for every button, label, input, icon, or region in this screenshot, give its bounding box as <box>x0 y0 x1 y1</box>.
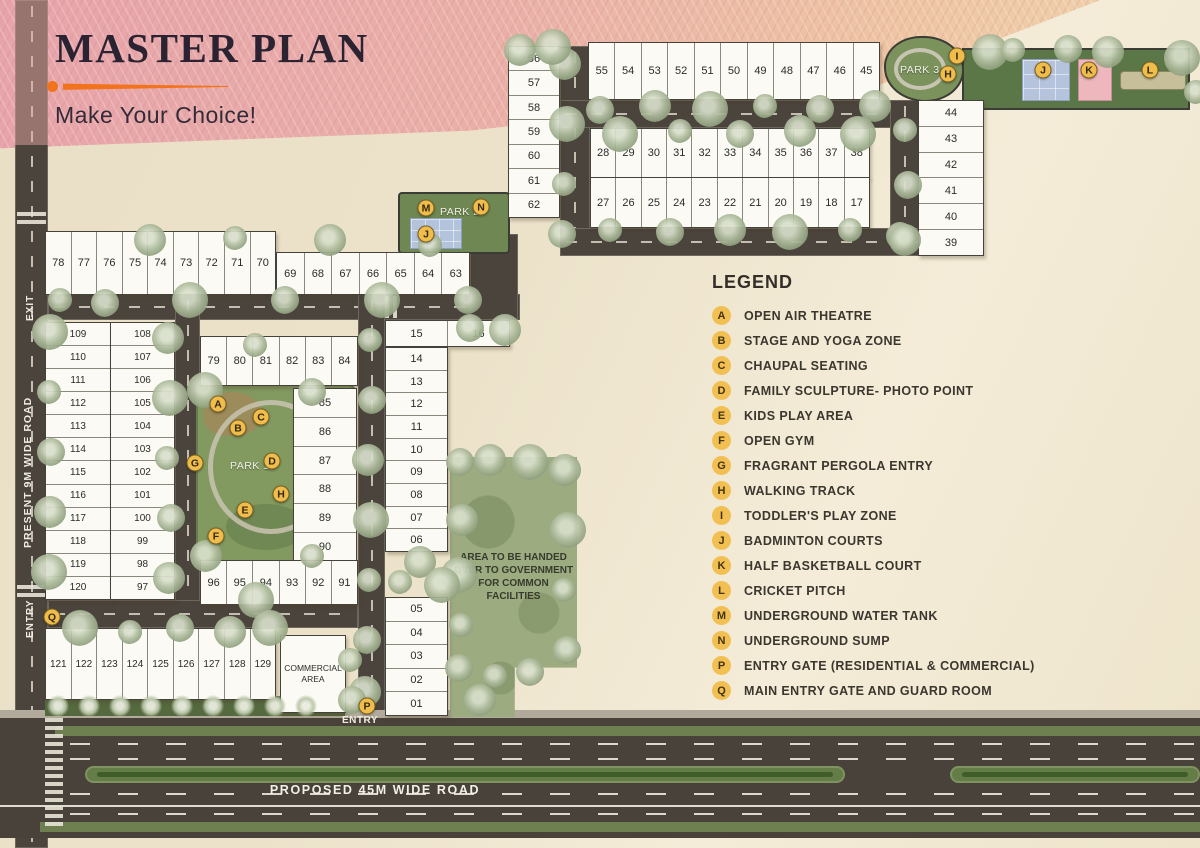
plot-group-96-91: 969594939291 <box>200 560 358 605</box>
map-marker-p-icon: P <box>359 698 376 715</box>
map-marker-i-icon: I <box>949 48 966 65</box>
plot-22[interactable]: 22 <box>718 178 743 227</box>
park3-label: PARK 3 <box>900 64 940 76</box>
legend-label: FRAGRANT PERGOLA ENTRY <box>744 459 933 473</box>
plot-104[interactable]: 104 <box>111 415 174 438</box>
plot-100[interactable]: 100 <box>111 508 174 531</box>
legend-item-a: AOPEN AIR THEATRE <box>712 306 1182 325</box>
commercial-area: COMMERCIAL AREA <box>280 635 346 713</box>
plot-23[interactable]: 23 <box>692 178 717 227</box>
plot-57[interactable]: 57 <box>509 71 559 95</box>
master-plan-map: PROPOSED 45M WIDE ROAD PARK 1 PARK 2 PAR… <box>0 0 1200 848</box>
legend-label: MAIN ENTRY GATE AND GUARD ROOM <box>744 684 992 698</box>
entry-left-label: ENTRY <box>25 598 36 640</box>
plot-90[interactable]: 90 <box>294 533 356 561</box>
plot-56[interactable]: 56 <box>509 47 559 71</box>
plot-04[interactable]: 04 <box>386 622 447 646</box>
map-marker-m-icon: M <box>418 200 435 217</box>
exit-label: EXIT <box>25 288 36 328</box>
plot-group-27-17: 2726252423222120191817 <box>590 177 870 228</box>
legend-item-g: GFRAGRANT PERGOLA ENTRY <box>712 456 1182 475</box>
plot-group-109-120: 109110111112113114115116117118119120 <box>45 322 111 600</box>
plot-25[interactable]: 25 <box>642 178 667 227</box>
plot-41[interactable]: 41 <box>919 178 983 204</box>
legend-item-c: CCHAUPAL SEATING <box>712 356 1182 375</box>
plot-119[interactable]: 119 <box>46 554 110 577</box>
divider-dot-icon <box>47 81 58 92</box>
plot-26[interactable]: 26 <box>616 178 641 227</box>
plot-81[interactable]: 81 <box>253 337 279 385</box>
legend-item-q: QMAIN ENTRY GATE AND GUARD ROOM <box>712 681 1182 700</box>
legend-label: HALF BASKETBALL COURT <box>744 559 922 573</box>
map-marker-g-icon: G <box>187 455 204 472</box>
plot-51[interactable]: 51 <box>695 43 721 99</box>
plot-58[interactable]: 58 <box>509 96 559 120</box>
plot-78[interactable]: 78 <box>46 232 72 294</box>
plot-128[interactable]: 128 <box>225 629 251 699</box>
plot-34[interactable]: 34 <box>743 129 768 177</box>
plot-47[interactable]: 47 <box>801 43 827 99</box>
plot-108[interactable]: 108 <box>111 323 174 346</box>
plot-40[interactable]: 40 <box>919 204 983 230</box>
plot-83[interactable]: 83 <box>306 337 332 385</box>
plot-09[interactable]: 09 <box>386 461 447 484</box>
plot-group-108-97: 108107106105104103102101100999897 <box>110 322 175 600</box>
plot-27[interactable]: 27 <box>591 178 616 227</box>
plot-43[interactable]: 43 <box>919 127 983 153</box>
road-proposed-45m <box>0 710 1200 838</box>
plot-42[interactable]: 42 <box>919 153 983 179</box>
plot-129[interactable]: 129 <box>251 629 276 699</box>
lane-marking <box>0 805 1200 807</box>
legend-label: OPEN GYM <box>744 434 815 448</box>
map-marker-h-icon: H <box>273 486 290 503</box>
plot-125[interactable]: 125 <box>148 629 174 699</box>
plot-62[interactable]: 62 <box>509 194 559 217</box>
title-divider <box>47 81 232 92</box>
legend-item-e: EKIDS PLAY AREA <box>712 406 1182 425</box>
divider-line-icon <box>63 82 228 91</box>
map-marker-k-icon: K <box>1081 62 1098 79</box>
plot-11[interactable]: 11 <box>386 416 447 439</box>
plot-120[interactable]: 120 <box>46 577 110 599</box>
plot-group-44-39: 444342414039 <box>918 100 984 256</box>
lane-marking <box>70 813 1200 815</box>
plot-115[interactable]: 115 <box>46 461 110 484</box>
plot-33[interactable]: 33 <box>718 129 743 177</box>
plot-15[interactable]: 15 <box>386 321 448 346</box>
plot-75[interactable]: 75 <box>123 232 149 294</box>
plot-98[interactable]: 98 <box>111 554 174 577</box>
plot-50[interactable]: 50 <box>721 43 747 99</box>
legend-item-d: DFAMILY SCULPTURE- PHOTO POINT <box>712 381 1182 400</box>
sports-strip <box>962 48 1190 110</box>
legend-badge-m-icon: M <box>712 606 731 625</box>
plot-49[interactable]: 49 <box>748 43 774 99</box>
plot-group-56-62: 56575859606162 <box>508 46 560 218</box>
legend-label: CRICKET PITCH <box>744 584 846 598</box>
plot-48[interactable]: 48 <box>774 43 800 99</box>
plot-30[interactable]: 30 <box>642 129 667 177</box>
plot-102[interactable]: 102 <box>111 461 174 484</box>
road-internal-top <box>48 294 520 320</box>
plot-55[interactable]: 55 <box>589 43 615 99</box>
plot-17[interactable]: 17 <box>845 178 869 227</box>
plot-85[interactable]: 85 <box>294 389 356 418</box>
plot-112[interactable]: 112 <box>46 392 110 415</box>
map-marker-e-icon: E <box>237 502 254 519</box>
plot-97[interactable]: 97 <box>111 577 174 599</box>
legend-label: UNDERGROUND WATER TANK <box>744 609 938 623</box>
legend-item-h: HWALKING TRACK <box>712 481 1182 500</box>
plot-29[interactable]: 29 <box>616 129 641 177</box>
plot-116[interactable]: 116 <box>46 485 110 508</box>
road-internal-midright <box>560 228 960 256</box>
road-internal-center-right <box>358 294 385 718</box>
plot-127[interactable]: 127 <box>199 629 225 699</box>
legend-badge-p-icon: P <box>712 656 731 675</box>
lane-marking <box>70 743 1200 745</box>
legend-item-n: NUNDERGROUND SUMP <box>712 631 1182 650</box>
park-2: PARK 2 <box>398 192 510 254</box>
legend-items: AOPEN AIR THEATREBSTAGE AND YOGA ZONECCH… <box>712 306 1182 700</box>
page-subtitle: Make Your Choice! <box>55 102 369 129</box>
road-internal-56 <box>560 46 590 256</box>
plot-105[interactable]: 105 <box>111 392 174 415</box>
bottom-road-label: PROPOSED 45M WIDE ROAD <box>245 783 505 797</box>
legend-item-l: LCRICKET PITCH <box>712 581 1182 600</box>
plot-121[interactable]: 121 <box>46 629 72 699</box>
zebra-crossing-icon <box>385 296 398 318</box>
plot-84[interactable]: 84 <box>332 337 357 385</box>
legend-title: LEGEND <box>712 272 1182 293</box>
plot-24[interactable]: 24 <box>667 178 692 227</box>
plot-group-79-84: 798081828384 <box>200 336 358 386</box>
plot-46[interactable]: 46 <box>827 43 853 99</box>
plot-05[interactable]: 05 <box>386 598 447 622</box>
tree-icon <box>388 570 412 594</box>
map-marker-q-icon: Q <box>44 609 61 626</box>
plot-19[interactable]: 19 <box>794 178 819 227</box>
plot-77[interactable]: 77 <box>72 232 98 294</box>
legend-item-f: FOPEN GYM <box>712 431 1182 450</box>
plot-89[interactable]: 89 <box>294 504 356 533</box>
legend-label: OPEN AIR THEATRE <box>744 309 872 323</box>
legend-badge-e-icon: E <box>712 406 731 425</box>
legend-badge-d-icon: D <box>712 381 731 400</box>
plot-group-69-63: 69686766656463 <box>276 252 470 295</box>
map-marker-l-icon: L <box>1142 62 1159 79</box>
road-median <box>85 766 845 783</box>
plot-group-78-70: 787776757473727170 <box>45 231 276 295</box>
plot-37[interactable]: 37 <box>819 129 844 177</box>
legend-label: BADMINTON COURTS <box>744 534 883 548</box>
road-banner-tint <box>15 0 48 145</box>
legend-item-p: PENTRY GATE (RESIDENTIAL & COMMERCIAL) <box>712 656 1182 675</box>
map-marker-f-icon: F <box>208 528 225 545</box>
plot-72[interactable]: 72 <box>199 232 225 294</box>
legend-label: UNDERGROUND SUMP <box>744 634 890 648</box>
plot-109[interactable]: 109 <box>46 323 110 346</box>
page-title: MASTER PLAN <box>55 24 369 72</box>
plot-group-55-45: 5554535251504948474645 <box>588 42 880 100</box>
plot-66[interactable]: 66 <box>360 253 388 294</box>
plot-18[interactable]: 18 <box>819 178 844 227</box>
plot-01[interactable]: 01 <box>386 692 447 715</box>
plot-45[interactable]: 45 <box>854 43 879 99</box>
legend-badge-c-icon: C <box>712 356 731 375</box>
plot-35[interactable]: 35 <box>769 129 794 177</box>
legend-item-k: KHALF BASKETBALL COURT <box>712 556 1182 575</box>
green-verge <box>40 822 1200 832</box>
plot-07[interactable]: 07 <box>386 507 447 530</box>
zebra-crossing-icon <box>17 585 46 598</box>
lane-marking <box>70 793 1200 795</box>
plot-52[interactable]: 52 <box>668 43 694 99</box>
legend-item-j: JBADMINTON COURTS <box>712 531 1182 550</box>
road-internal-topright <box>560 100 920 128</box>
plot-54[interactable]: 54 <box>615 43 641 99</box>
legend-label: STAGE AND YOGA ZONE <box>744 334 902 348</box>
map-marker-j-icon: J <box>418 226 435 243</box>
plot-32[interactable]: 32 <box>692 129 717 177</box>
plot-64[interactable]: 64 <box>415 253 443 294</box>
legend-label: FAMILY SCULPTURE- PHOTO POINT <box>744 384 973 398</box>
plot-82[interactable]: 82 <box>280 337 306 385</box>
plot-38[interactable]: 38 <box>845 129 869 177</box>
legend-badge-l-icon: L <box>712 581 731 600</box>
plot-67[interactable]: 67 <box>332 253 360 294</box>
legend-label: ENTRY GATE (RESIDENTIAL & COMMERCIAL) <box>744 659 1035 673</box>
legend-item-i: ITODDLER'S PLAY ZONE <box>712 506 1182 525</box>
plot-86[interactable]: 86 <box>294 418 356 447</box>
plot-group-05-01: 0504030201 <box>385 597 448 716</box>
map-marker-a-icon: A <box>210 396 227 413</box>
plot-20[interactable]: 20 <box>769 178 794 227</box>
plot-92[interactable]: 92 <box>306 561 332 604</box>
legend-badge-h-icon: H <box>712 481 731 500</box>
plot-69[interactable]: 69 <box>277 253 305 294</box>
plot-group-28-38: 2829303132333435363738 <box>590 128 870 178</box>
lane-marking <box>70 758 1200 760</box>
plot-65[interactable]: 65 <box>387 253 415 294</box>
plot-68[interactable]: 68 <box>305 253 333 294</box>
legend-badge-i-icon: I <box>712 506 731 525</box>
plot-110[interactable]: 110 <box>46 346 110 369</box>
plot-60[interactable]: 60 <box>509 145 559 169</box>
left-road-label: PRESENT 9M WIDE ROAD <box>22 382 34 562</box>
plot-10[interactable]: 10 <box>386 439 447 462</box>
legend-badge-k-icon: K <box>712 556 731 575</box>
green-verge <box>55 726 1200 736</box>
plot-31[interactable]: 31 <box>667 129 692 177</box>
legend-badge-j-icon: J <box>712 531 731 550</box>
map-marker-n-icon: N <box>473 199 490 216</box>
legend-label: WALKING TRACK <box>744 484 855 498</box>
plot-group-15-16: 1516 <box>385 320 510 347</box>
plot-95[interactable]: 95 <box>227 561 253 604</box>
plot-08[interactable]: 08 <box>386 484 447 507</box>
legend-label: CHAUPAL SEATING <box>744 359 868 373</box>
legend-badge-f-icon: F <box>712 431 731 450</box>
plot-103[interactable]: 103 <box>111 438 174 461</box>
plot-88[interactable]: 88 <box>294 475 356 504</box>
plot-118[interactable]: 118 <box>46 531 110 554</box>
legend-label: TODDLER'S PLAY ZONE <box>744 509 897 523</box>
plot-106[interactable]: 106 <box>111 369 174 392</box>
plot-101[interactable]: 101 <box>111 485 174 508</box>
legend-badge-q-icon: Q <box>712 681 731 700</box>
entry-bottom-label: ENTRY <box>330 715 390 726</box>
government-area-label: AREA TO BE HANDED OVER TO GOVERNMENT FOR… <box>453 551 574 603</box>
plot-123[interactable]: 123 <box>97 629 123 699</box>
plot-03[interactable]: 03 <box>386 645 447 669</box>
plot-91[interactable]: 91 <box>332 561 357 604</box>
plot-87[interactable]: 87 <box>294 447 356 476</box>
plot-39[interactable]: 39 <box>919 230 983 255</box>
plot-117[interactable]: 117 <box>46 508 110 531</box>
plot-group-14-06: 141312111009080706 <box>385 347 448 552</box>
plot-94[interactable]: 94 <box>253 561 279 604</box>
plot-63[interactable]: 63 <box>442 253 469 294</box>
plot-14[interactable]: 14 <box>386 348 447 371</box>
plot-61[interactable]: 61 <box>509 169 559 193</box>
plot-93[interactable]: 93 <box>280 561 306 604</box>
plot-71[interactable]: 71 <box>225 232 251 294</box>
plot-70[interactable]: 70 <box>251 232 276 294</box>
zebra-crossing-icon <box>45 718 63 830</box>
plot-06[interactable]: 06 <box>386 529 447 551</box>
plot-16[interactable]: 16 <box>448 321 509 346</box>
map-marker-j-icon: J <box>1035 62 1052 79</box>
road-median <box>950 766 1200 783</box>
header: MASTER PLAN Make Your Choice! <box>55 24 369 129</box>
plot-44[interactable]: 44 <box>919 101 983 127</box>
plot-124[interactable]: 124 <box>123 629 149 699</box>
legend-item-b: BSTAGE AND YOGA ZONE <box>712 331 1182 350</box>
legend-badge-a-icon: A <box>712 306 731 325</box>
plot-21[interactable]: 21 <box>743 178 768 227</box>
legend-item-m: MUNDERGROUND WATER TANK <box>712 606 1182 625</box>
plot-80[interactable]: 80 <box>227 337 253 385</box>
legend-badge-g-icon: G <box>712 456 731 475</box>
plot-107[interactable]: 107 <box>111 346 174 369</box>
plot-76[interactable]: 76 <box>97 232 123 294</box>
map-marker-c-icon: C <box>253 409 270 426</box>
plot-12[interactable]: 12 <box>386 393 447 416</box>
plot-114[interactable]: 114 <box>46 438 110 461</box>
plot-79[interactable]: 79 <box>201 337 227 385</box>
plot-13[interactable]: 13 <box>386 371 447 394</box>
plot-74[interactable]: 74 <box>148 232 174 294</box>
legend-panel: LEGEND AOPEN AIR THEATREBSTAGE AND YOGA … <box>712 272 1182 706</box>
zebra-crossing-icon <box>17 212 46 225</box>
plot-59[interactable]: 59 <box>509 120 559 144</box>
map-marker-h-icon: H <box>940 66 957 83</box>
plot-122[interactable]: 122 <box>72 629 98 699</box>
map-marker-d-icon: D <box>264 453 281 470</box>
plot-111[interactable]: 111 <box>46 369 110 392</box>
plot-99[interactable]: 99 <box>111 531 174 554</box>
legend-badge-n-icon: N <box>712 631 731 650</box>
plot-group-121-129: 121122123124125126127128129 <box>45 628 276 700</box>
plot-73[interactable]: 73 <box>174 232 200 294</box>
map-marker-b-icon: B <box>230 420 247 437</box>
legend-label: KIDS PLAY AREA <box>744 409 853 423</box>
plot-36[interactable]: 36 <box>794 129 819 177</box>
legend-badge-b-icon: B <box>712 331 731 350</box>
plot-126[interactable]: 126 <box>174 629 200 699</box>
plot-28[interactable]: 28 <box>591 129 616 177</box>
plot-113[interactable]: 113 <box>46 415 110 438</box>
plot-96[interactable]: 96 <box>201 561 227 604</box>
plot-53[interactable]: 53 <box>642 43 668 99</box>
plot-group-85-90: 858687888990 <box>293 388 357 562</box>
plot-02[interactable]: 02 <box>386 669 447 693</box>
government-area: AREA TO BE HANDED OVER TO GOVERNMENT FOR… <box>450 457 577 717</box>
